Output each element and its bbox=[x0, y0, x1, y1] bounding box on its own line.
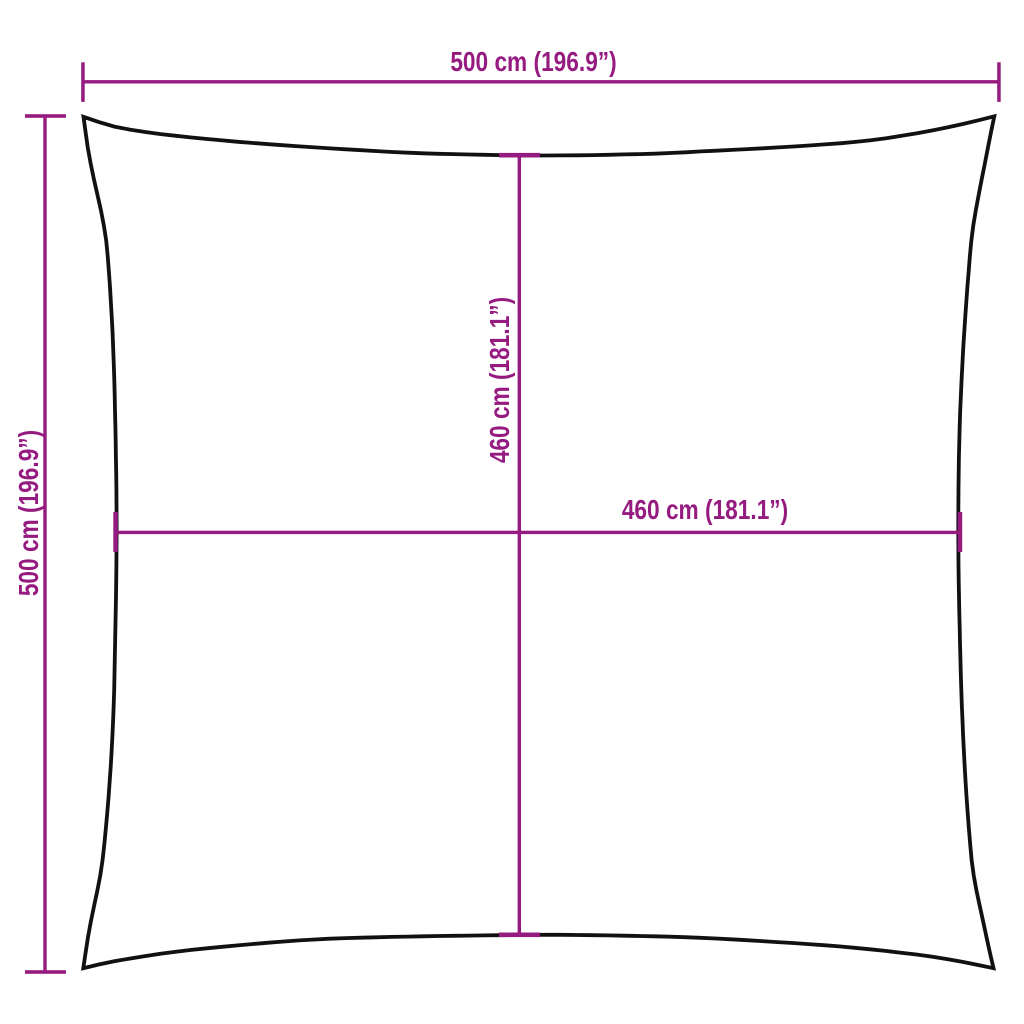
svg-text:500 cm (196.9”): 500 cm (196.9”) bbox=[450, 47, 616, 78]
svg-text:460 cm (181.1”): 460 cm (181.1”) bbox=[622, 495, 788, 526]
svg-text:460 cm (181.1”): 460 cm (181.1”) bbox=[485, 297, 516, 463]
svg-text:500 cm (196.9”): 500 cm (196.9”) bbox=[14, 430, 45, 596]
